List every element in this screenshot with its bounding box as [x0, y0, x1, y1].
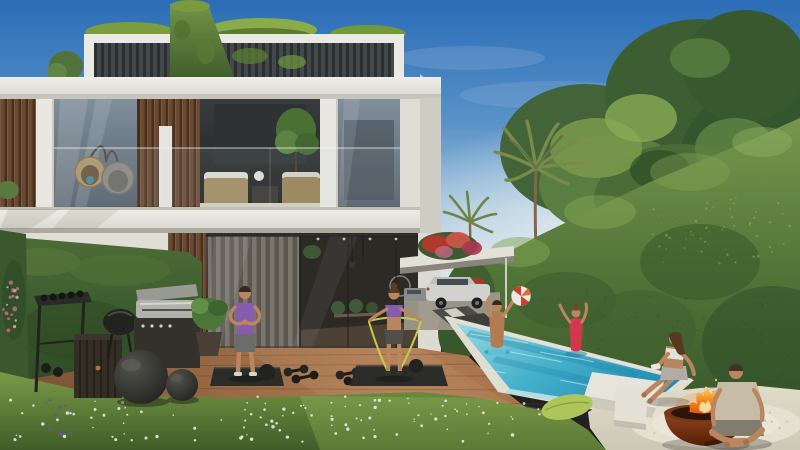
scene-canvas — [0, 0, 800, 450]
villa-backyard-render — [0, 0, 800, 450]
vignette — [0, 0, 800, 450]
